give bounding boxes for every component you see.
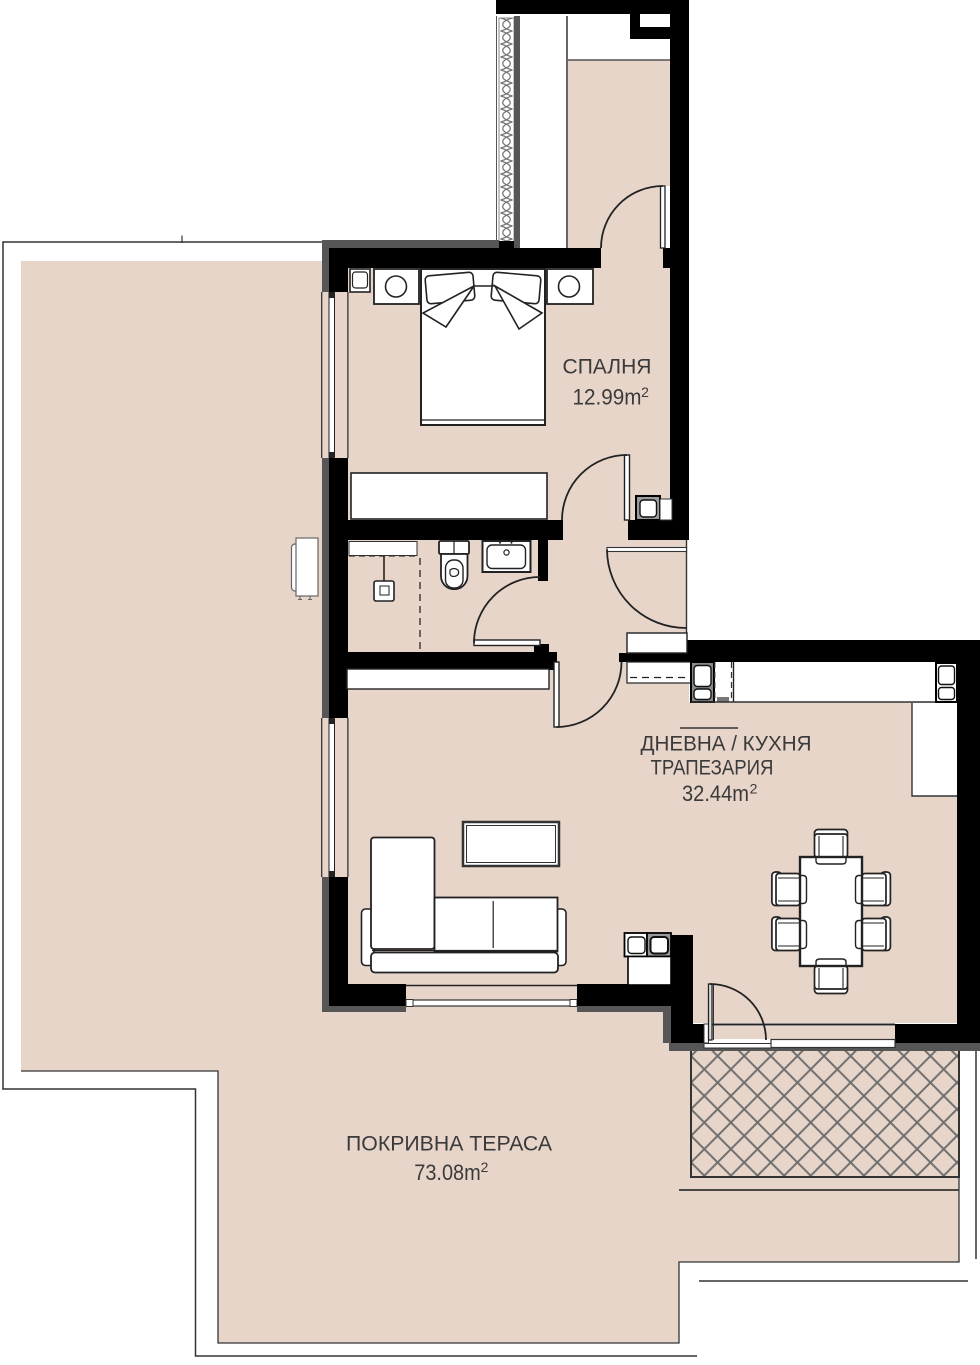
svg-text:ДНЕВНА / КУХНЯ: ДНЕВНА / КУХНЯ <box>641 733 812 756</box>
svg-text:2: 2 <box>481 1159 489 1175</box>
svg-text:ТРАПЕЗАРИЯ: ТРАПЕЗАРИЯ <box>651 757 774 780</box>
svg-text:2: 2 <box>750 781 758 797</box>
svg-text:ПОКРИВНА ТЕРАСА: ПОКРИВНА ТЕРАСА <box>346 1133 552 1156</box>
svg-text:32.44m: 32.44m <box>682 781 749 806</box>
svg-text:СПАЛНЯ: СПАЛНЯ <box>563 356 652 379</box>
svg-text:2: 2 <box>641 384 649 400</box>
svg-text:73.08m: 73.08m <box>414 1160 481 1185</box>
svg-text:12.99m: 12.99m <box>573 385 642 410</box>
